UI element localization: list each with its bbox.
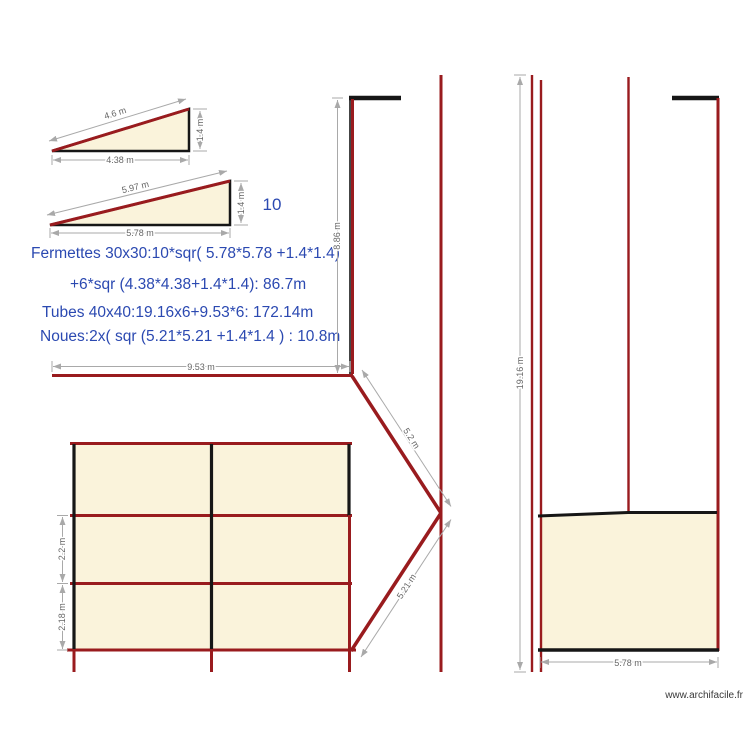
dim-noue-lower: 5.21 m: [361, 520, 451, 658]
archifacile-watermark: www.archifacile.fr: [664, 690, 743, 701]
noue-upper-line[interactable]: [352, 376, 441, 513]
dim-right-total-height-label: 19.16 m: [515, 357, 525, 390]
note-noues[interactable]: Noues:2x( sqr (5.21*5.21 +1.4*1.4 ) : 10…: [40, 328, 340, 345]
right-roof-fill[interactable]: [540, 513, 718, 650]
dim-main-left-height-label: 8.86 m: [332, 222, 342, 250]
note-tubes[interactable]: Tubes 40x40:19.16x6+9.53*6: 172.14m: [42, 304, 313, 321]
note-fermettes-total[interactable]: +6*sqr (4.38*4.38+1.4*1.4): 86.7m: [70, 276, 306, 293]
dim-large-base-label: 5.78 m: [126, 228, 154, 238]
dim-right-base-width-label: 5.78 m: [614, 658, 642, 668]
dim-small-height: 1.4 m: [193, 109, 207, 151]
dim-main-width-label: 9.53 m: [187, 362, 215, 372]
noue-lower-line[interactable]: [351, 513, 441, 651]
dim-row-bottom-label: 2.18 m: [57, 603, 67, 631]
dim-row-middle-label: 2.2 m: [57, 538, 67, 561]
dim-large-height-label: 1.4 m: [236, 192, 246, 215]
dim-small-base: 4.38 m: [52, 155, 189, 165]
dim-right-base-width: 5.78 m: [540, 657, 718, 668]
right-plan: 19.16 m 5.78 m: [514, 75, 719, 672]
note-fermettes[interactable]: Fermettes 30x30:10*sqr( 5.78*5.78 +1.4*1…: [31, 245, 340, 262]
dim-large-base: 5.78 m: [50, 228, 230, 238]
dim-large-height: 1.4 m: [234, 181, 248, 225]
dim-small-height-label: 1.4 m: [195, 119, 205, 142]
drawing-canvas: 4.6 m 1.4 m 4.38 m 5.97 m 1.4 m 5.78 m 1…: [0, 0, 750, 750]
dim-row-bottom: 2.18 m: [57, 585, 68, 650]
dim-main-width: 9.53 m: [52, 361, 350, 372]
dim-noue-upper-label: 5.2 m: [401, 426, 422, 450]
dim-row-middle: 2.2 m: [57, 516, 68, 584]
truss-count-label[interactable]: 10: [263, 195, 282, 214]
dim-small-base-label: 4.38 m: [106, 155, 134, 165]
dim-right-total-height: 19.16 m: [514, 75, 526, 672]
dim-noue-upper: 5.2 m: [362, 370, 451, 507]
dim-large-hypotenuse-label: 5.97 m: [121, 179, 150, 195]
dim-small-hypotenuse-label: 4.6 m: [103, 105, 127, 121]
